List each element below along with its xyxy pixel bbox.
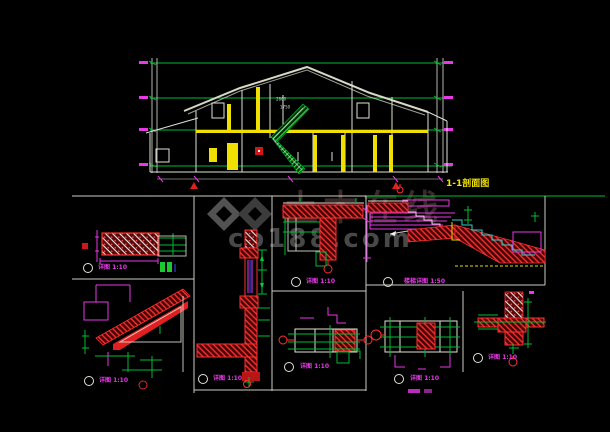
staircase [255,104,309,174]
walls [146,81,448,172]
stair-dimension-note: 1750 [280,106,290,110]
cad-drawing-viewport: 土木在线 co188.com [0,0,610,432]
detail-label-stair: 楼梯详图 1:50 [404,279,445,285]
detail-label-eave: 详图 1:10 [99,378,128,384]
ground-marker [392,182,400,189]
detail-label-wall-section: 详图 1:10 [213,376,242,382]
detail-bubble [395,375,404,384]
section-view [139,58,453,189]
stair-dimension-note: 2800 [276,98,286,102]
detail-bubble [285,363,294,372]
detail-bubble [85,377,94,386]
detail-label-slab-column: 详图 1:10 [306,279,335,285]
detail-label-skirting: 详图 1:10 [98,265,127,271]
detail-label-beam-a: 详图 1:10 [300,364,329,370]
ground-marker [190,182,198,189]
detail-beam-a [279,307,372,372]
detail-bubble [84,264,93,273]
watermark-logo-icon [207,197,272,231]
detail-bubble [292,278,301,287]
detail-bubble [474,354,483,363]
detail-slab-column [283,198,371,287]
detail-wall-section [197,230,270,388]
detail-stair [368,200,545,287]
detail-label-wall-joint: 详图 1:10 [488,355,517,361]
section-title: 1-1剖面图 [446,180,489,189]
detail-bubble [199,375,208,384]
detail-label-beam-b: 详图 1:10 [410,376,439,382]
detail-eave [82,285,190,389]
